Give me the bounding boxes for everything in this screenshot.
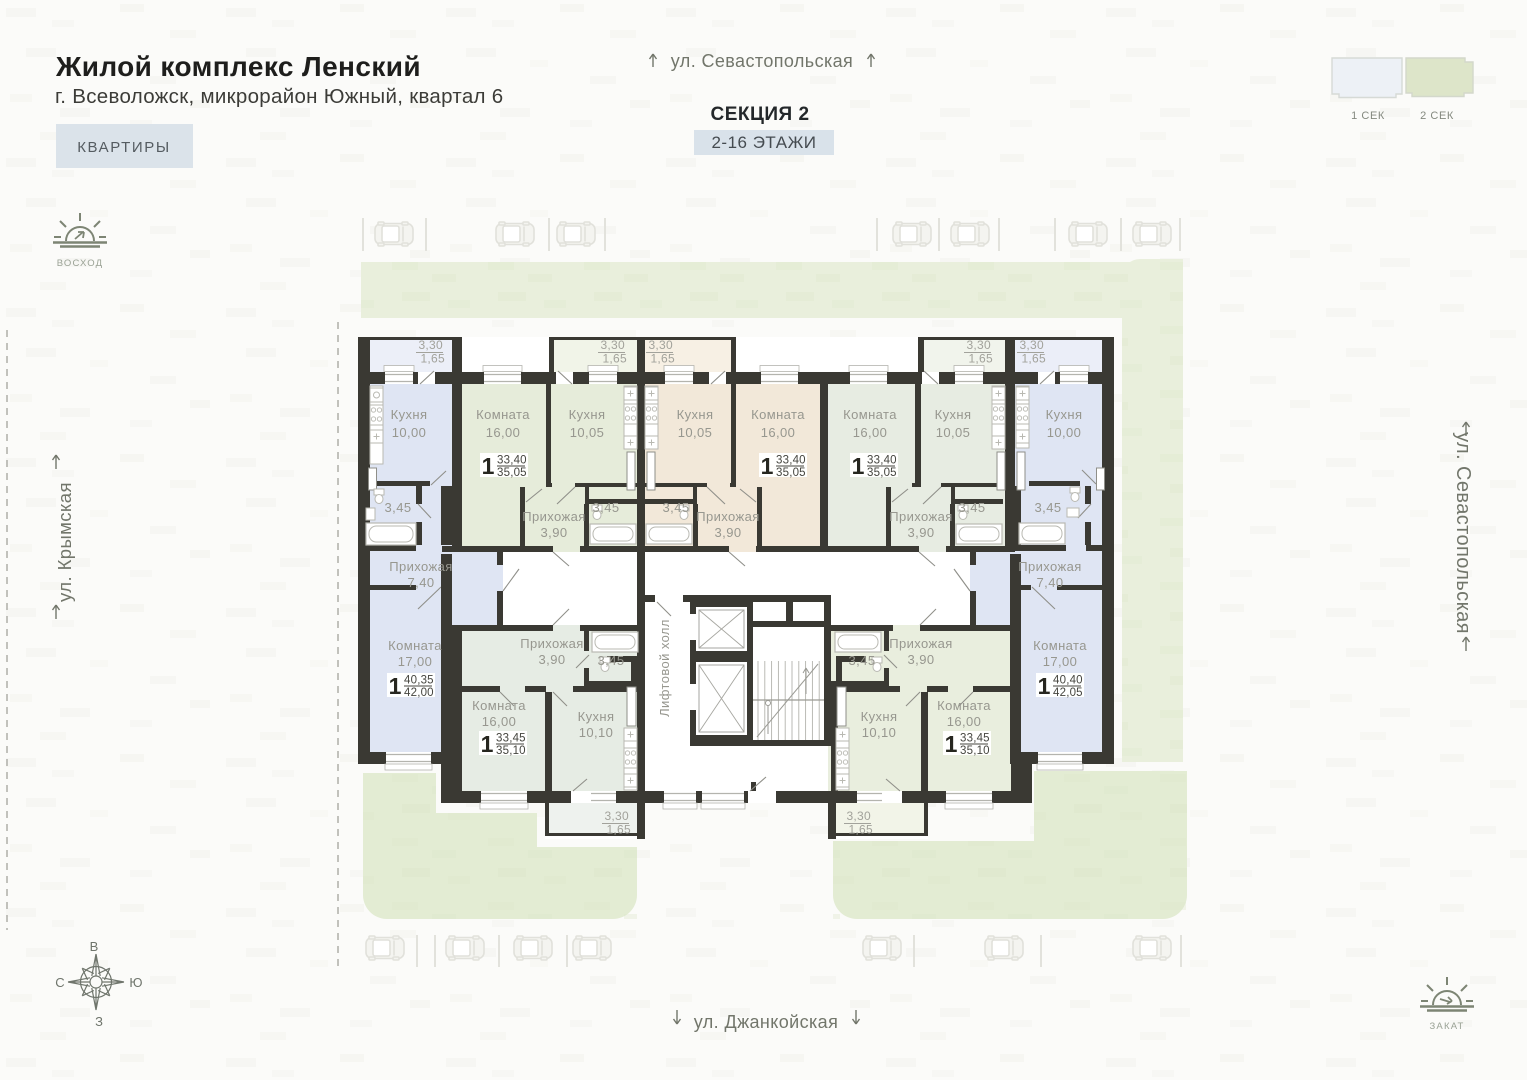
svg-text:Комната: Комната <box>476 407 530 422</box>
svg-text:КВАРТИРЫ: КВАРТИРЫ <box>77 139 171 156</box>
svg-text:7,40: 7,40 <box>408 575 435 590</box>
svg-text:Прихожая: Прихожая <box>520 636 583 651</box>
svg-text:10,05: 10,05 <box>570 425 605 440</box>
svg-text:1,65: 1,65 <box>420 352 445 366</box>
svg-text:Прихожая: Прихожая <box>696 509 759 524</box>
svg-text:В: В <box>90 939 99 954</box>
svg-text:33,40: 33,40 <box>776 455 806 467</box>
svg-text:40,35: 40,35 <box>404 675 434 687</box>
svg-text:3,90: 3,90 <box>541 525 568 540</box>
svg-text:2-16 ЭТАЖИ: 2-16 ЭТАЖИ <box>711 133 816 152</box>
svg-text:ЗАКАТ: ЗАКАТ <box>1429 1021 1464 1032</box>
svg-text:Комната: Комната <box>472 698 526 713</box>
svg-text:3,30: 3,30 <box>600 338 625 352</box>
svg-text:Комната: Комната <box>388 638 442 653</box>
svg-text:Прихожая: Прихожая <box>522 509 585 524</box>
svg-text:1,65: 1,65 <box>602 352 627 366</box>
svg-text:1: 1 <box>945 731 958 757</box>
svg-text:г. Всеволожск, микрорайон Южны: г. Всеволожск, микрорайон Южный, квартал… <box>55 85 504 108</box>
svg-text:3,90: 3,90 <box>908 652 935 667</box>
svg-text:1: 1 <box>481 731 494 757</box>
svg-text:1,65: 1,65 <box>1021 352 1046 366</box>
svg-text:16,00: 16,00 <box>761 425 796 440</box>
svg-text:3,45: 3,45 <box>1035 500 1062 515</box>
svg-text:35,05: 35,05 <box>497 467 527 479</box>
svg-text:Прихожая: Прихожая <box>889 636 952 651</box>
svg-text:1,65: 1,65 <box>650 352 675 366</box>
svg-text:16,00: 16,00 <box>947 714 982 729</box>
svg-text:Кухня: Кухня <box>677 407 714 422</box>
svg-text:33,45: 33,45 <box>496 733 526 745</box>
svg-text:1,65: 1,65 <box>968 352 993 366</box>
svg-text:35,05: 35,05 <box>776 467 806 479</box>
svg-text:Прихожая: Прихожая <box>389 559 452 574</box>
svg-text:33,40: 33,40 <box>497 455 527 467</box>
svg-text:Прихожая: Прихожая <box>1018 559 1081 574</box>
svg-text:Кухня: Кухня <box>935 407 972 422</box>
svg-text:10,05: 10,05 <box>936 425 971 440</box>
svg-text:ул. Севастопольская: ул. Севастопольская <box>1452 432 1474 634</box>
svg-text:Кухня: Кухня <box>861 709 898 724</box>
svg-text:35,10: 35,10 <box>496 745 526 757</box>
svg-text:СЕКЦИЯ 2: СЕКЦИЯ 2 <box>710 104 809 125</box>
svg-text:3,90: 3,90 <box>908 525 935 540</box>
svg-text:3,45: 3,45 <box>598 653 625 668</box>
svg-text:ул. Крымская: ул. Крымская <box>54 482 75 602</box>
svg-text:17,00: 17,00 <box>1043 654 1078 669</box>
svg-text:1,65: 1,65 <box>848 823 873 837</box>
svg-text:10,05: 10,05 <box>678 425 713 440</box>
svg-text:Комната: Комната <box>751 407 805 422</box>
svg-text:3,45: 3,45 <box>959 500 986 515</box>
svg-text:35,10: 35,10 <box>960 745 990 757</box>
svg-text:Жилой комплекс Ленский: Жилой комплекс Ленский <box>55 51 421 82</box>
svg-text:Лифтовой холл: Лифтовой холл <box>657 619 672 717</box>
svg-text:1,65: 1,65 <box>606 823 631 837</box>
svg-text:3,30: 3,30 <box>418 338 443 352</box>
svg-text:40,40: 40,40 <box>1053 675 1083 687</box>
svg-text:Комната: Комната <box>843 407 897 422</box>
svg-text:Комната: Комната <box>1033 638 1087 653</box>
svg-text:16,00: 16,00 <box>853 425 888 440</box>
svg-text:Кухня: Кухня <box>391 407 428 422</box>
svg-text:7,40: 7,40 <box>1037 575 1064 590</box>
svg-text:1: 1 <box>389 673 402 699</box>
svg-text:3,30: 3,30 <box>648 338 673 352</box>
svg-text:Кухня: Кухня <box>1046 407 1083 422</box>
svg-text:3,30: 3,30 <box>1019 338 1044 352</box>
svg-text:3,45: 3,45 <box>849 653 876 668</box>
svg-text:3,45: 3,45 <box>663 500 690 515</box>
svg-text:3,30: 3,30 <box>604 809 629 823</box>
svg-text:С: С <box>55 975 64 990</box>
svg-text:Кухня: Кухня <box>578 709 615 724</box>
svg-text:Комната: Комната <box>937 698 991 713</box>
svg-text:10,00: 10,00 <box>1047 425 1082 440</box>
svg-text:ул. Севастопольская: ул. Севастопольская <box>671 51 853 71</box>
svg-text:42,05: 42,05 <box>1053 687 1083 699</box>
svg-text:1: 1 <box>1038 673 1051 699</box>
svg-text:ВОСХОД: ВОСХОД <box>57 258 104 269</box>
svg-text:3,30: 3,30 <box>846 809 871 823</box>
svg-text:3,45: 3,45 <box>385 500 412 515</box>
svg-text:16,00: 16,00 <box>482 714 517 729</box>
svg-text:42,00: 42,00 <box>404 687 434 699</box>
svg-text:З: З <box>95 1014 103 1029</box>
svg-text:10,10: 10,10 <box>579 725 614 740</box>
svg-text:33,45: 33,45 <box>960 733 990 745</box>
svg-text:3,90: 3,90 <box>715 525 742 540</box>
svg-text:10,00: 10,00 <box>392 425 427 440</box>
svg-text:1: 1 <box>482 453 495 479</box>
svg-text:3,90: 3,90 <box>539 652 566 667</box>
svg-text:1: 1 <box>761 453 774 479</box>
svg-text:ул. Джанкойская: ул. Джанкойская <box>694 1012 838 1032</box>
svg-text:Кухня: Кухня <box>569 407 606 422</box>
svg-text:3,30: 3,30 <box>966 338 991 352</box>
svg-text:Прихожая: Прихожая <box>889 509 952 524</box>
svg-text:Ю: Ю <box>129 975 142 990</box>
svg-text:1: 1 <box>852 453 865 479</box>
svg-text:10,10: 10,10 <box>862 725 897 740</box>
svg-text:1 СЕК: 1 СЕК <box>1351 110 1385 122</box>
svg-text:17,00: 17,00 <box>398 654 433 669</box>
svg-text:33,40: 33,40 <box>867 455 897 467</box>
svg-text:2 СЕК: 2 СЕК <box>1420 110 1454 122</box>
svg-text:3,45: 3,45 <box>593 500 620 515</box>
svg-text:16,00: 16,00 <box>486 425 521 440</box>
svg-text:35,05: 35,05 <box>867 467 897 479</box>
